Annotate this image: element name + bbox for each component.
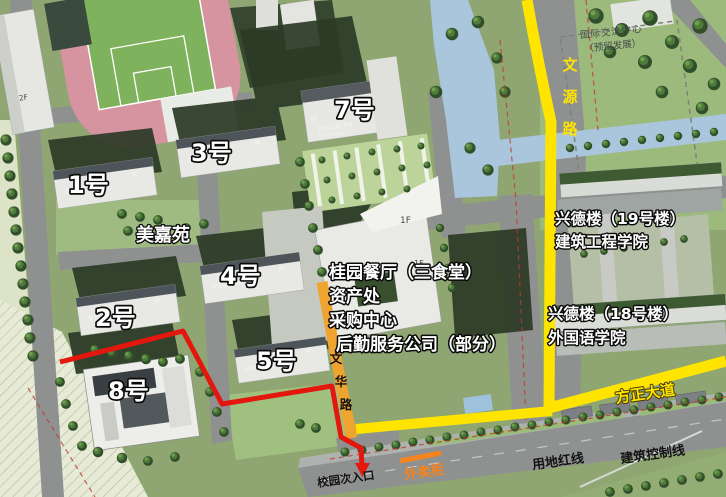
meijiayuan-label: 美嘉苑 [136, 224, 190, 246]
xingde19-label-line2: 建筑工程学院 [555, 232, 649, 251]
canteen-label-line3: 采购中心 [328, 310, 397, 331]
building-1-label: 1号 [68, 171, 109, 199]
wenyuan-char-2: 源 [562, 88, 577, 106]
canteen-label-line4: 后勤服务公司（部分） [336, 334, 506, 355]
building-2-label: 2号 [95, 304, 136, 332]
building-7-label: 7号 [334, 96, 375, 124]
canteen-label-line1: 桂园餐厅（三食堂） [328, 262, 482, 283]
building-4-label: 4号 [220, 262, 261, 290]
xingde18-label-line2: 外国语学院 [548, 328, 626, 347]
campus-map: 2F 学生公寓1#楼 9F [0, 0, 726, 497]
plaza-19 [568, 214, 714, 310]
canteen-label-line2: 资产处 [329, 286, 381, 307]
building-5-label: 5号 [256, 347, 297, 375]
wenyuan-road-label: 文 源 路 [562, 56, 578, 138]
building-8-label: 8号 [108, 377, 149, 405]
wenhua-char-3: 路 [340, 397, 353, 412]
canteen-floors-text: 1F [400, 216, 411, 226]
building-3-label: 3号 [191, 139, 232, 167]
xingde19-label-line1: 兴德楼（19号楼） [555, 209, 685, 228]
gym-floors-text: 2F [18, 92, 29, 102]
wenhua-char-2: 华 [335, 374, 348, 389]
campus-map-canvas: 2F 学生公寓1#楼 9F [0, 0, 726, 497]
wenyuan-char-1: 文 [562, 56, 578, 74]
xingde18-label-line1: 兴德楼（18号楼） [548, 304, 678, 323]
wenyuan-char-3: 路 [562, 120, 578, 138]
